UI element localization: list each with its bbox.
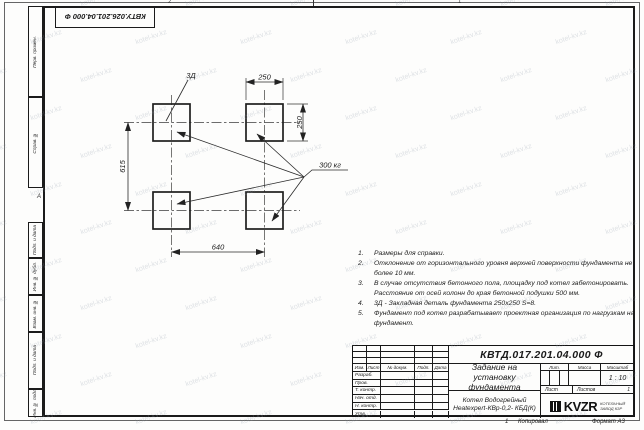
tb-lit-cell: [550, 371, 559, 386]
leader-lines: [166, 80, 348, 221]
tb-lit-cell: [541, 371, 550, 386]
tb-blank-cell: [381, 387, 415, 395]
tb-blank-cell: [433, 380, 449, 388]
tb-blank-cell: [381, 411, 415, 419]
centerlines: [124, 90, 300, 257]
product-line1: Котел Водогрейный: [463, 397, 527, 405]
tb-blank-cell: [415, 387, 433, 395]
sheet-label: Лист: [545, 387, 558, 393]
tb-sheet-cell: Лист: [541, 386, 573, 394]
tb-blank-cell: [433, 395, 449, 403]
note-item: 1.Размеры для справки.: [355, 249, 637, 259]
tb-blank-cell: [433, 372, 449, 380]
note-number: 4.: [355, 299, 374, 309]
tb-row-nkontr: Н. контр.: [353, 403, 381, 411]
note-text: 3Д - Закладная деталь фундамента 250х250…: [374, 299, 637, 309]
tb-blank-cell: [381, 380, 415, 388]
zone-number-bottom: 1: [505, 419, 508, 425]
tb-blank-cell: [381, 403, 415, 411]
label-load: 300 кг: [319, 161, 341, 170]
kvzr-logo-text: KVZR: [564, 399, 597, 414]
kvzr-logo-mark: [550, 401, 561, 412]
note-item: 5.Фундамент под котел разрабатывает прое…: [355, 309, 637, 329]
note-text: Отклонение от горизонтального уровня вер…: [374, 259, 637, 279]
title-block: Изм. Лист № докум. Подп. Дата Разраб. Пр…: [352, 345, 635, 417]
dim-height-right: 250: [295, 115, 304, 129]
tb-blank-cell: [433, 403, 449, 411]
tb-row-razrab: Разраб.: [353, 372, 381, 380]
tb-col-data: Дата: [433, 364, 449, 372]
note-text: Размеры для справки.: [374, 249, 637, 259]
tb-lit-cell: [560, 371, 569, 386]
tb-doc-number: КВТД.017.201.04.000 Ф: [449, 346, 634, 364]
sheets-value: 1: [627, 387, 630, 393]
tb-mass-label: Масса: [569, 364, 601, 371]
tb-blank-cell: [415, 372, 433, 380]
tb-blank-cell: [415, 380, 433, 388]
sheets-label: Листов: [577, 387, 595, 393]
tb-blank-cell: [415, 395, 433, 403]
tb-drawing-title: Задание на установку фундамента: [449, 364, 541, 391]
note-number: 3.: [355, 279, 374, 299]
tb-blank-cell: [433, 387, 449, 395]
note-item: 2.Отклонение от горизонтального уровня в…: [355, 259, 637, 279]
tb-col-list: Лист: [367, 364, 381, 372]
tb-company-cell: KVZR КОТЕЛЬНЫЙ ЗАВОД КЗР: [541, 394, 634, 418]
tb-blank-cell: [433, 411, 449, 419]
note-number: 1.: [355, 249, 374, 259]
note-number: 2.: [355, 259, 374, 279]
tb-row-prov: Пров.: [353, 380, 381, 388]
extension-lines: [246, 78, 308, 141]
tb-col-izm: Изм.: [353, 364, 367, 372]
tb-product-name: Котел Водогрейный Heatexpert-КВр-0,2- КБ…: [449, 391, 541, 418]
copied-label: Копировал: [518, 419, 548, 425]
tb-row-utv: Утв.: [353, 411, 381, 419]
product-line2: Heatexpert-КВр-0,2- КБД(К): [453, 405, 536, 413]
tb-scale-label: Масштаб: [601, 364, 634, 371]
note-item: 4.3Д - Закладная деталь фундамента 250х2…: [355, 299, 637, 309]
tb-blank-cell: [381, 372, 415, 380]
tb-blank-cell: [415, 411, 433, 419]
kvzr-logo-caption: КОТЕЛЬНЫЙ ЗАВОД КЗР: [600, 401, 625, 411]
tb-mass-cell: [569, 371, 601, 386]
logo-caption-line2: ЗАВОД КЗР: [600, 406, 625, 411]
dim-height-left: 615: [118, 159, 127, 172]
note-text: В случае отсутствия бетонного пола, площ…: [374, 279, 637, 299]
label-embedded-detail: 3Д: [186, 71, 196, 80]
tb-row-tkontr: Т. контр.: [353, 387, 381, 395]
tb-lit-label: Лит.: [541, 364, 569, 371]
drawing-sheet: 2 1 А КВТУ.026.201.04.000 Ф Перв. примен…: [0, 0, 644, 430]
tb-blank-cell: [415, 403, 433, 411]
dim-width-bottom: 640: [212, 243, 225, 252]
notes-list: 1.Размеры для справки. 2.Отклонение от г…: [355, 249, 637, 329]
dim-width-top: 250: [257, 73, 271, 82]
note-text: Фундамент под котел разрабатывает проект…: [374, 309, 637, 329]
tb-col-podp: Подп.: [415, 364, 433, 372]
tb-scale-value: 1 : 10: [601, 371, 634, 386]
note-number: 5.: [355, 309, 374, 329]
note-item: 3.В случае отсутствия бетонного пола, пл…: [355, 279, 637, 299]
tb-col-docnum: № докум.: [381, 364, 415, 372]
tb-row-nachotd: Нач. отд.: [353, 395, 381, 403]
tb-blank-cell: [381, 395, 415, 403]
format-label: Формат А3: [592, 419, 625, 425]
tb-sheets-cell: Листов 1: [573, 386, 634, 394]
